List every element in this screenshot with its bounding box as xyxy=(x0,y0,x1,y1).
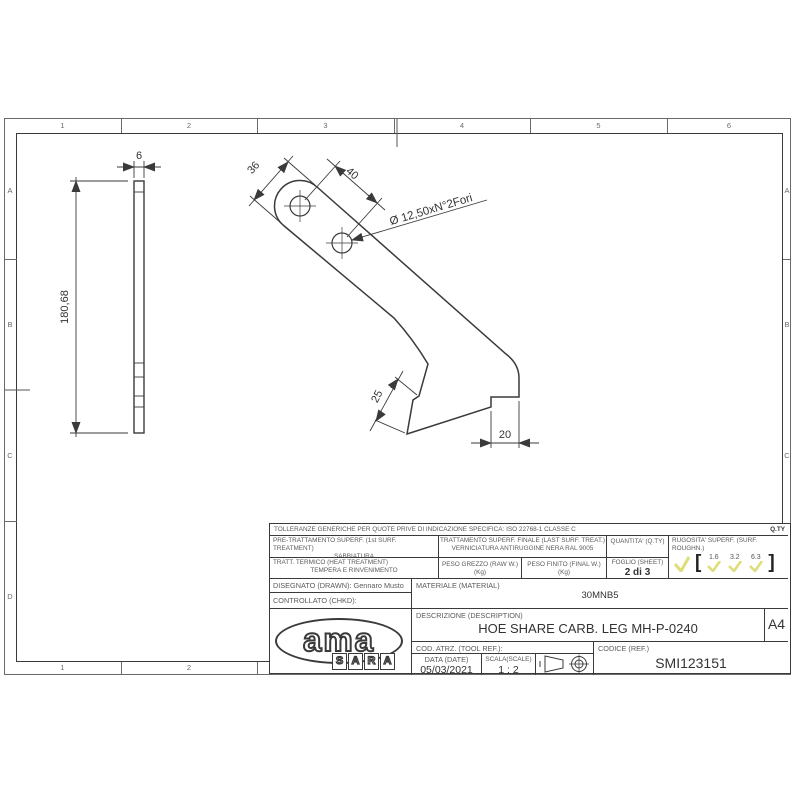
date-value: 05/03/2021 xyxy=(412,664,481,675)
date-label: DATA (DATE) xyxy=(412,654,481,664)
checked-label: CONTROLLATO (CHKD): xyxy=(270,593,411,605)
sheet-cell: FOGLIO (SHEET) 2 di 3 xyxy=(606,557,668,578)
final-treatment-cell: TRATTAMENTO SUPERF. FINALE (LAST SURF. T… xyxy=(438,535,606,557)
dimension-height: 180,68 xyxy=(59,177,128,437)
final-weight-cell: PESO FINITO (FINAL W.) (Kg) xyxy=(521,557,606,578)
title-block: TOLLERANZE GENERICHE PER QUOTE PRIVE DI … xyxy=(269,523,791,674)
scale-cell: SCALA(SCALE) 1 : 2 xyxy=(481,653,535,675)
svg-text:40: 40 xyxy=(343,165,360,182)
dimension-step: 20 xyxy=(471,401,539,448)
logo-letter: A xyxy=(380,653,395,670)
logo-letter: S xyxy=(332,653,347,670)
heat-treatment-label: TRATT. TERMICO (HEAT TREATMENT) xyxy=(270,558,438,567)
format-value: A4 xyxy=(765,609,788,640)
roughness-check-icon xyxy=(707,561,721,572)
raw-weight-label: PESO GREZZO (RAW W.) (Kg) xyxy=(439,558,521,577)
drawn-label: DISEGNATO (DRAWN): Gennaro Musto xyxy=(270,579,411,590)
roughness-item: 3.2 xyxy=(726,554,743,572)
raw-weight-cell: PESO GREZZO (RAW W.) (Kg) xyxy=(438,557,521,578)
qty-label: Q.TY xyxy=(770,526,785,534)
description-value: HOE SHARE CARB. LEG MH-P-0240 xyxy=(412,621,764,636)
final-treatment-label: TRATTAMENTO SUPERF. FINALE (LAST SURF. T… xyxy=(439,536,606,545)
scale-value: 1 : 2 xyxy=(482,664,535,675)
checked-cell: CONTROLLATO (CHKD): xyxy=(270,592,411,608)
side-view xyxy=(134,181,144,433)
tool-ref-cell: COD. ATRZ. (TOOL REF.): xyxy=(411,641,593,653)
scale-label: SCALA(SCALE) xyxy=(482,654,535,664)
code-value: SMI123151 xyxy=(594,655,788,671)
sheet-label: FOGLIO (SHEET) xyxy=(607,558,668,567)
dimension-foot-face: 25 xyxy=(369,371,417,433)
material-cell: MATERIALE (MATERIAL) 30MNB5 xyxy=(411,578,788,608)
svg-text:36: 36 xyxy=(245,159,262,176)
roughness-value: 6.3 xyxy=(751,554,761,561)
tool-ref-label: COD. ATRZ. (TOOL REF.): xyxy=(412,642,593,653)
heat-treatment-cell: TRATT. TERMICO (HEAT TREATMENT) TEMPERA … xyxy=(270,557,438,578)
final-treatment-value: VERNICIATURA ANTIRUGGINE NERA RAL 9005 xyxy=(439,545,606,553)
svg-text:180,68: 180,68 xyxy=(59,290,71,324)
roughness-check-icon xyxy=(673,556,691,572)
final-weight-label: PESO FINITO (FINAL W.) (Kg) xyxy=(522,558,606,577)
dimension-hole-spacing: 40 xyxy=(305,159,385,237)
roughness-label: RUGOSITA' SUPERF. (SURF. xyxy=(669,536,788,545)
first-angle-projection-icon xyxy=(537,654,593,674)
date-cell: DATA (DATE) 05/03/2021 xyxy=(411,653,481,675)
code-label: CODICE (REF.) xyxy=(594,642,788,653)
bracket-close: ] xyxy=(768,554,774,572)
logo-subtext: S A R A xyxy=(332,653,395,670)
roughness-item: 6.3 xyxy=(747,554,764,572)
svg-text:Ø 12,50xN°2Fori: Ø 12,50xN°2Fori xyxy=(388,192,474,228)
drawn-cell: DISEGNATO (DRAWN): Gennaro Musto xyxy=(270,578,411,592)
dimension-thickness: 6 xyxy=(117,150,161,178)
tolerance-note: TOLLERANZE GENERICHE PER QUOTE PRIVE DI … xyxy=(274,526,576,534)
roughness-cell: RUGOSITA' SUPERF. (SURF. ROUGHN.) [ 1.6 … xyxy=(668,535,788,578)
svg-text:25: 25 xyxy=(369,388,385,404)
logo-letter: R xyxy=(364,653,379,670)
roughness-value: 3.2 xyxy=(730,554,740,561)
pre-treatment-label: PRE-TRATTAMENTO SUPERF. (1st SURF. TREAT… xyxy=(270,536,438,553)
svg-text:20: 20 xyxy=(499,429,511,441)
heat-treatment-value: TEMPERA E RINVENIMENTO xyxy=(270,567,438,575)
code-cell: CODICE (REF.) SMI123151 xyxy=(593,641,788,675)
drawing-views: 6 180,68 36 xyxy=(0,0,800,800)
logo-text: ama xyxy=(303,623,375,656)
roughness-check-icon xyxy=(749,561,763,572)
projection-cell xyxy=(535,653,593,675)
drawing-sheet: 1 2 3 4 5 6 1 2 A B C D A B C xyxy=(0,0,800,800)
roughness-item: 1.6 xyxy=(705,554,722,572)
material-label: MATERIALE (MATERIAL) xyxy=(412,579,788,590)
quantity-cell: QUANTITA' (Q.TY) xyxy=(606,535,668,557)
description-cell: DESCRIZIONE (DESCRIPTION) HOE SHARE CARB… xyxy=(411,608,764,641)
svg-text:6: 6 xyxy=(136,150,142,162)
quantity-label: QUANTITA' (Q.TY) xyxy=(607,536,668,546)
material-value: 30MNB5 xyxy=(412,590,788,601)
bracket-open: [ xyxy=(695,554,701,572)
sheet-value: 2 di 3 xyxy=(607,567,668,578)
tolerance-row: TOLLERANZE GENERICHE PER QUOTE PRIVE DI … xyxy=(270,524,788,535)
description-label: DESCRIZIONE (DESCRIPTION) xyxy=(412,609,764,620)
pre-treatment-cell: PRE-TRATTAMENTO SUPERF. (1st SURF. TREAT… xyxy=(270,535,438,557)
roughness-check-icon xyxy=(728,561,742,572)
logo-letter: A xyxy=(348,653,363,670)
hole-center-marks xyxy=(284,190,358,259)
roughness-value: 1.6 xyxy=(709,554,719,561)
format-cell: A4 xyxy=(764,608,788,641)
logo-cell: ama S A R A xyxy=(270,608,411,675)
